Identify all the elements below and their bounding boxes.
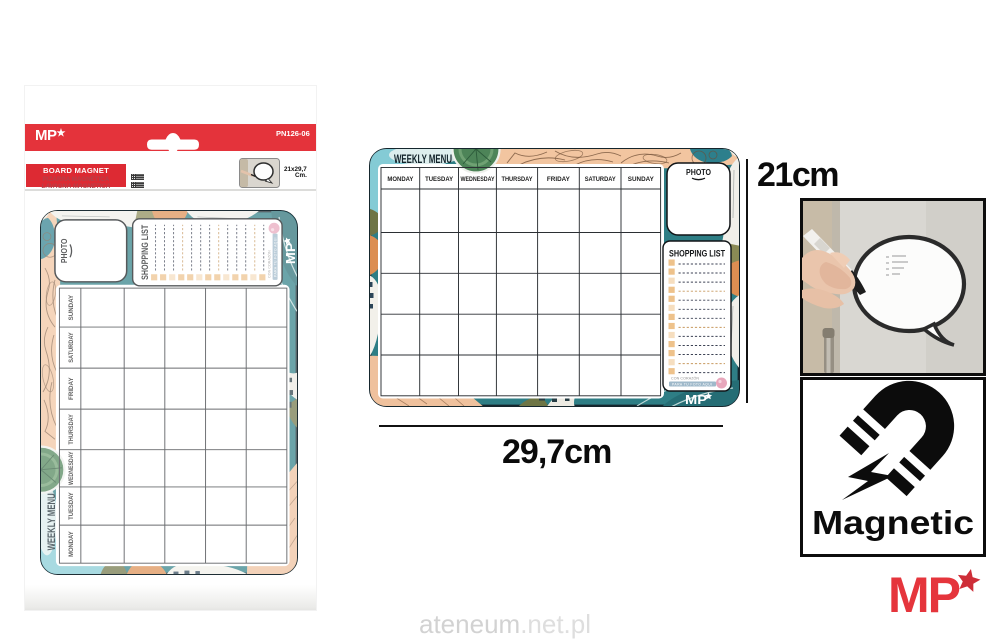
svg-text:PARA TU FOTO AQUI: PARA TU FOTO AQUI xyxy=(672,382,712,386)
svg-text:Magnetic: Magnetic xyxy=(812,504,974,541)
svg-text:SUNDAY: SUNDAY xyxy=(628,176,654,183)
svg-text:WEDNESDAY: WEDNESDAY xyxy=(461,176,495,183)
svg-text:CON CORAZÓN: CON CORAZÓN xyxy=(671,376,699,381)
svg-text:MP: MP xyxy=(685,392,707,407)
svg-text:SHOPPING LIST: SHOPPING LIST xyxy=(669,249,725,259)
svg-text:SATURDAY: SATURDAY xyxy=(585,176,616,183)
svg-text:FRIDAY: FRIDAY xyxy=(547,176,570,183)
svg-text:TUESDAY: TUESDAY xyxy=(425,176,453,183)
svg-text:THURSDAY: THURSDAY xyxy=(502,176,533,183)
svg-text:WEEKLY MENU: WEEKLY MENU xyxy=(394,154,452,166)
svg-text:PHOTO: PHOTO xyxy=(686,168,711,177)
svg-text:MONDAY: MONDAY xyxy=(387,176,413,183)
